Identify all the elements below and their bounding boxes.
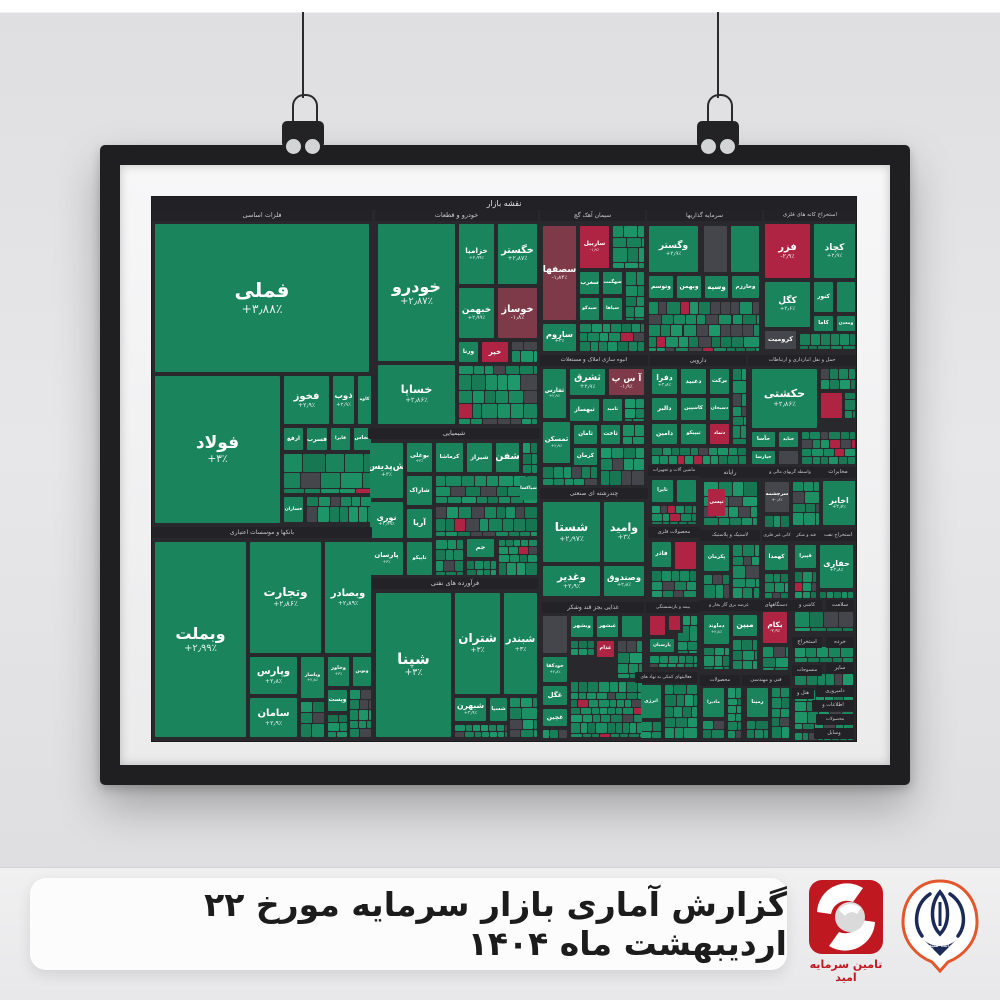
filler-cell <box>637 641 642 652</box>
sector-header: بانکها و موسسات اعتباری <box>152 527 372 538</box>
filler-cell <box>458 532 469 536</box>
filler-cell <box>583 715 592 721</box>
stock-cell: پارسان+۳٪ <box>370 542 403 575</box>
filler-cell <box>601 459 612 470</box>
stock-symbol: تاپیکو <box>412 556 426 562</box>
filler-cell <box>454 550 463 559</box>
filler-cell <box>728 699 737 705</box>
stock-change: +۲٫۸٪ <box>549 670 560 675</box>
stock-symbol: آریا <box>413 519 426 528</box>
stock-cell: دعبید <box>681 369 706 394</box>
filler-cell <box>821 457 828 464</box>
filler-cell <box>499 540 505 546</box>
stock-symbol: وپست <box>329 697 347 704</box>
filler-cell <box>613 248 627 262</box>
stock-symbol: ورنا <box>463 349 474 356</box>
filler-cell <box>618 641 626 652</box>
sector-header: هتل و <box>792 688 814 699</box>
stock-symbol: انرژی <box>644 699 658 705</box>
stock-cell: پکرمان <box>704 545 729 571</box>
filler-cell <box>718 448 728 455</box>
filler-cell <box>436 572 445 575</box>
filler-cell <box>481 725 488 731</box>
filler-cell <box>665 695 676 706</box>
stock-cell: فایرا <box>331 428 350 450</box>
filler-cell <box>589 700 598 707</box>
filler-cell <box>755 545 759 556</box>
filler-cell <box>810 432 820 439</box>
filler-cell <box>284 473 300 488</box>
filler-cell <box>678 642 687 650</box>
filler-cell <box>774 647 785 657</box>
filler-cell <box>312 724 324 737</box>
filler-cell <box>721 302 730 314</box>
filler-cell <box>803 724 814 729</box>
filler-cell <box>724 667 729 669</box>
omid-logo-label: تامین سرمایه امید <box>798 958 894 984</box>
filler-cell <box>490 732 497 737</box>
frame-mat: نقشه بازار فملی+۳٫۸۸٪فولاد+۳٪فخوز+۲٫۹٪ذو… <box>120 165 890 765</box>
filler-cell <box>484 570 490 575</box>
filler-cell <box>624 448 635 458</box>
filler-cell <box>678 633 689 641</box>
filler-cell <box>839 612 853 627</box>
filler-cell <box>622 324 630 332</box>
filler-cell <box>800 334 810 345</box>
stock-symbol: کگل <box>778 296 797 306</box>
filler-cell <box>498 419 510 424</box>
filler-cell <box>704 518 718 525</box>
filler-cell <box>657 348 664 351</box>
stock-symbol: شیراز <box>470 454 488 461</box>
filler-cell <box>719 518 729 525</box>
filler-cell <box>824 612 838 627</box>
filler-cell <box>466 519 479 531</box>
stock-cell: ثامان <box>574 425 597 444</box>
filler-cell <box>803 583 811 592</box>
filler-cell <box>692 707 697 717</box>
stock-cell: ورنا <box>459 342 478 362</box>
filler-cell <box>703 348 713 351</box>
stock-symbol: سپاها <box>606 306 619 311</box>
filler-cell <box>611 715 622 721</box>
stock-change: +۳٪ <box>515 646 527 653</box>
filler-cell <box>571 734 582 737</box>
filler-cell <box>848 592 853 598</box>
filler-cell <box>510 555 519 561</box>
filler-cell <box>621 333 632 342</box>
filler-cell <box>473 391 484 403</box>
stock-cell: خودکفا+۲٫۸٪ <box>543 657 567 682</box>
filler-cell <box>660 656 669 663</box>
filler-cell <box>448 497 461 503</box>
stock-change: +۲٫۸٪ <box>830 568 844 574</box>
filler-cell <box>674 591 683 597</box>
caption-card: گزارش آماری بازار سرمایه مورخ ۲۲ اردیبهش… <box>30 878 787 970</box>
filler-cell <box>688 718 697 727</box>
filler-cell <box>812 449 823 456</box>
filler-cell <box>623 425 634 436</box>
filler-cell <box>672 448 679 455</box>
filler-cell <box>601 448 611 458</box>
filler-cell <box>484 561 490 569</box>
filler-cell <box>523 720 533 729</box>
filler-cell <box>723 575 729 584</box>
filler-cell <box>652 448 662 455</box>
filler-cell <box>795 702 806 711</box>
stock-cell: وبهمن <box>677 276 701 298</box>
stock-change: +۳٪ <box>405 668 423 679</box>
filler-cell <box>633 419 644 421</box>
stock-symbol: شسپا <box>491 707 505 713</box>
filler-cell <box>588 333 598 342</box>
filler-cell <box>565 479 573 485</box>
filler-cell <box>802 440 812 448</box>
stock-cell: ثاخت <box>601 425 620 444</box>
stock-change: +۳٪ <box>207 453 227 465</box>
filler-cell <box>523 443 530 453</box>
filler-cell <box>641 722 652 731</box>
filler-cell <box>812 583 816 592</box>
filler-cell <box>671 325 682 336</box>
filler-cell <box>467 570 476 575</box>
filler-cell <box>641 324 644 332</box>
filler-cell <box>482 404 496 417</box>
filler-cell <box>580 342 590 351</box>
filler-cell <box>841 432 848 439</box>
filler-cell <box>617 700 624 707</box>
stock-cell <box>543 616 567 653</box>
stock-change: -۱٫۹٪ <box>620 384 632 390</box>
filler-cell <box>475 732 482 737</box>
stock-cell <box>731 226 759 272</box>
filler-cell <box>588 649 594 655</box>
filler-cell <box>821 380 829 389</box>
filler-cell <box>446 572 456 575</box>
filler-cell <box>772 709 780 717</box>
filler-cell <box>739 507 750 516</box>
stock-symbol: کاوه <box>360 397 370 402</box>
filler-cell <box>845 400 855 410</box>
filler-cell <box>736 348 745 351</box>
filler-cell <box>684 591 696 597</box>
filler-cell <box>703 730 711 738</box>
filler-cell <box>623 437 632 444</box>
filler-cell <box>663 514 669 520</box>
filler-cell <box>637 723 642 733</box>
filler-cell <box>632 324 640 332</box>
stock-change: +۲٫۷٪ <box>832 505 846 511</box>
stock-change: +۲٫۸٪ <box>617 583 631 589</box>
stock-cell: آ س پ-۱٫۹٪ <box>609 369 644 395</box>
filler-cell <box>850 334 855 345</box>
filler-cell <box>728 714 735 721</box>
filler-cell <box>649 348 656 351</box>
hanging-wire-left <box>302 12 304 98</box>
filler-cell <box>532 454 537 464</box>
sector-header: رایانه <box>700 467 760 478</box>
filler-cell <box>681 302 690 314</box>
filler-cell <box>459 391 472 403</box>
filler-cell <box>534 351 537 362</box>
stock-change: +۲٫۸٪ <box>265 678 282 685</box>
stock-change: +۳٪ <box>555 339 565 345</box>
stock-cell: فاذر <box>652 542 671 567</box>
filler-cell <box>585 479 597 485</box>
sector-header: انبوه سازی املاک و مستغلات <box>540 355 648 366</box>
filler-cell <box>487 476 497 486</box>
filler-cell <box>704 648 714 655</box>
sector-header: عرضه برق گاز بخار و <box>700 600 758 611</box>
filler-cell <box>367 721 371 728</box>
stock-cell: غدام <box>597 641 614 657</box>
sector-header: منسوجات <box>792 665 822 676</box>
filler-cell <box>811 334 820 345</box>
stock-cell: شاراک <box>407 476 432 505</box>
filler-cell <box>742 407 746 417</box>
filler-cell <box>826 674 833 685</box>
filler-cell <box>684 325 697 336</box>
wall: نقشه بازار فملی+۳٫۸۸٪فولاد+۳٪فخوز+۲٫۹٪ذو… <box>0 0 1000 1000</box>
filler-cell <box>582 467 590 478</box>
stock-cell: شستا+۲٫۹۷٪ <box>543 502 600 562</box>
filler-cell <box>574 479 584 485</box>
filler-cell <box>459 375 471 390</box>
filler-cell <box>688 642 697 650</box>
stock-symbol: شفن <box>496 452 519 463</box>
filler-cell <box>613 459 623 470</box>
filler-cell <box>780 718 789 727</box>
filler-cell <box>601 715 610 721</box>
stock-cell: وخاور+۳٪ <box>328 657 349 686</box>
stock-symbol: قپیرا <box>799 554 811 560</box>
filler-cell <box>795 592 802 598</box>
stock-symbol: شستا <box>555 521 588 535</box>
stock-symbol: غچین <box>547 714 564 721</box>
filler-cell <box>738 699 741 705</box>
stock-symbol: سصفها <box>543 265 576 275</box>
filler-cell <box>572 467 581 478</box>
filler-cell <box>743 325 753 336</box>
filler-cell <box>436 476 445 486</box>
filler-cell <box>728 456 737 464</box>
filler-cell <box>350 721 358 728</box>
filler-cell <box>641 732 651 738</box>
filler-cell <box>715 648 724 655</box>
stock-cell: برکت <box>710 369 729 394</box>
filler-cell <box>436 497 447 503</box>
filler-cell <box>679 522 687 524</box>
filler-cell <box>677 664 685 667</box>
stock-cell: رمپنا <box>747 688 768 717</box>
stock-change: +۲٫۸۷٪ <box>400 296 433 307</box>
filler-cell <box>284 489 304 493</box>
filler-cell <box>510 708 521 719</box>
filler-cell <box>677 695 685 706</box>
filler-cell <box>638 226 644 237</box>
stock-change: +۲٫۸۶٪ <box>273 600 298 609</box>
stock-cell: سهگمت <box>603 272 622 294</box>
filler-cell <box>839 457 847 464</box>
filler-cell <box>709 325 721 336</box>
filler-cell <box>793 492 804 503</box>
filler-cell <box>579 693 585 699</box>
filler-cell <box>579 649 587 655</box>
filler-cell <box>321 489 340 493</box>
filler-cell <box>676 506 683 513</box>
stock-symbol: شپنا <box>397 651 430 668</box>
filler-cell <box>543 479 553 485</box>
filler-cell <box>662 571 671 581</box>
filler-cell <box>711 456 717 464</box>
filler-cell <box>689 337 698 346</box>
filler-cell <box>579 682 587 692</box>
stock-cell: ثمسکن+۲٫۹٪ <box>543 422 570 463</box>
filler-cell <box>446 532 457 536</box>
filler-cell <box>636 448 644 458</box>
stock-cell: کاوه <box>358 376 371 424</box>
filler-cell <box>675 728 683 738</box>
filler-cell <box>499 555 509 561</box>
stock-cell: وسپه <box>705 276 728 298</box>
stock-symbol: کاسپین <box>684 406 703 412</box>
binder-clip-right <box>697 121 739 148</box>
filler-cell <box>841 647 853 657</box>
stock-cell: حآسا <box>752 432 775 447</box>
stock-cell: نوری+۲٫۹۹٪ <box>370 502 403 538</box>
filler-cell <box>511 404 522 417</box>
filler-cell <box>593 715 600 721</box>
stock-cell: خزامیا+۲٫۹۹٪ <box>459 224 494 284</box>
stock-symbol: کنور <box>817 294 830 301</box>
filler-cell <box>685 695 692 706</box>
filler-cell <box>447 507 458 518</box>
filler-cell <box>728 706 736 713</box>
filler-cell <box>713 575 722 584</box>
filler-cell <box>747 730 754 738</box>
stock-change: +۲٫۹٪ <box>666 251 681 257</box>
filler-cell <box>581 723 587 733</box>
filler-cell <box>795 612 809 627</box>
filler-cell <box>509 391 522 403</box>
filler-cell <box>326 454 344 472</box>
filler-cell <box>694 695 697 706</box>
filler-cell <box>506 540 513 546</box>
filler-cell <box>642 238 644 248</box>
filler-cell <box>689 651 697 653</box>
sector-header: سیمان آهک گچ <box>540 210 645 221</box>
stock-symbol: ومعدن <box>839 321 854 326</box>
filler-cell <box>626 318 634 320</box>
filler-cell <box>339 715 347 722</box>
filler-cell <box>521 698 532 707</box>
filler-cell <box>782 727 789 738</box>
sector-header: بیمه و بازنشستگی <box>646 602 700 613</box>
stock-symbol: کاما <box>818 320 829 326</box>
stock-symbol: شتران <box>458 632 497 646</box>
filler-cell <box>491 570 496 575</box>
stock-cell: وغدیر+۲٫۹٪ <box>543 566 600 596</box>
filler-cell <box>550 730 558 738</box>
filler-cell <box>301 724 311 737</box>
stock-cell: ساربیل-۱٫۹٪ <box>580 226 609 268</box>
stock-cell <box>650 616 665 635</box>
filler-cell <box>795 647 805 657</box>
filler-cell <box>821 432 828 439</box>
stock-symbol: کرومیت <box>768 336 793 343</box>
filler-cell <box>678 456 684 464</box>
stock-symbol: فاذر <box>655 551 667 558</box>
filler-cell <box>626 307 634 317</box>
stock-cell: پارسیان <box>650 639 674 652</box>
filler-cell <box>827 592 833 598</box>
stock-cell: دتماد <box>710 424 729 444</box>
filler-cell <box>341 497 351 506</box>
stock-symbol: خزامیا <box>465 247 487 255</box>
filler-cell <box>633 437 644 444</box>
treemap-title: نقشه بازار <box>152 197 856 210</box>
stock-cell: ذوب+۲٫۹٪ <box>333 376 354 424</box>
stock-cell: وبملت+۲٫۹۹٪ <box>155 542 246 737</box>
stock-cell: وتجارت+۲٫۸۶٪ <box>250 542 321 653</box>
filler-cell <box>328 715 338 722</box>
filler-cell <box>489 725 496 731</box>
sector-header: فرآورده های نفتی <box>372 578 538 589</box>
filler-cell <box>480 519 488 531</box>
filler-cell <box>845 393 855 399</box>
filler-cell <box>522 419 531 424</box>
filler-cell <box>623 715 633 721</box>
filler-cell <box>733 369 741 380</box>
filler-cell <box>821 440 829 448</box>
stock-cell: سغرب <box>580 272 599 294</box>
filler-cell <box>740 302 752 314</box>
stock-cell: سامان+۲٫۹٪ <box>250 698 297 737</box>
stock-cell: سرچشمه+۰٫۶٪ <box>765 482 789 512</box>
filler-cell <box>635 425 644 436</box>
stock-cell: خساپا+۲٫۸۶٪ <box>378 365 455 424</box>
filler-cell <box>806 504 816 512</box>
filler-cell <box>763 647 773 657</box>
filler-cell <box>736 688 741 698</box>
filler-cell <box>663 448 671 455</box>
filler-cell <box>459 366 473 374</box>
filler-cell <box>663 582 674 590</box>
filler-cell <box>313 702 324 712</box>
filler-cell <box>714 721 724 729</box>
filler-cell <box>600 708 607 715</box>
filler-cell <box>520 532 530 536</box>
filler-cell <box>330 507 338 522</box>
filler-cell <box>738 448 746 455</box>
filler-cell <box>657 337 665 346</box>
filler-cell <box>743 545 754 556</box>
filler-cell <box>508 487 519 497</box>
stock-symbol: وگستر <box>659 241 688 251</box>
filler-cell <box>511 419 521 424</box>
filler-cell <box>685 506 693 513</box>
filler-cell <box>436 507 446 518</box>
filler-cell <box>729 448 737 455</box>
filler-cell <box>627 641 636 652</box>
filler-cell <box>742 394 746 406</box>
filler-cell <box>529 547 537 554</box>
filler-cell <box>795 733 802 740</box>
filler-cell <box>840 334 849 345</box>
filler-cell <box>477 497 487 503</box>
filler-cell <box>809 346 817 349</box>
stock-cell: وصندوق+۲٫۸٪ <box>604 566 644 596</box>
